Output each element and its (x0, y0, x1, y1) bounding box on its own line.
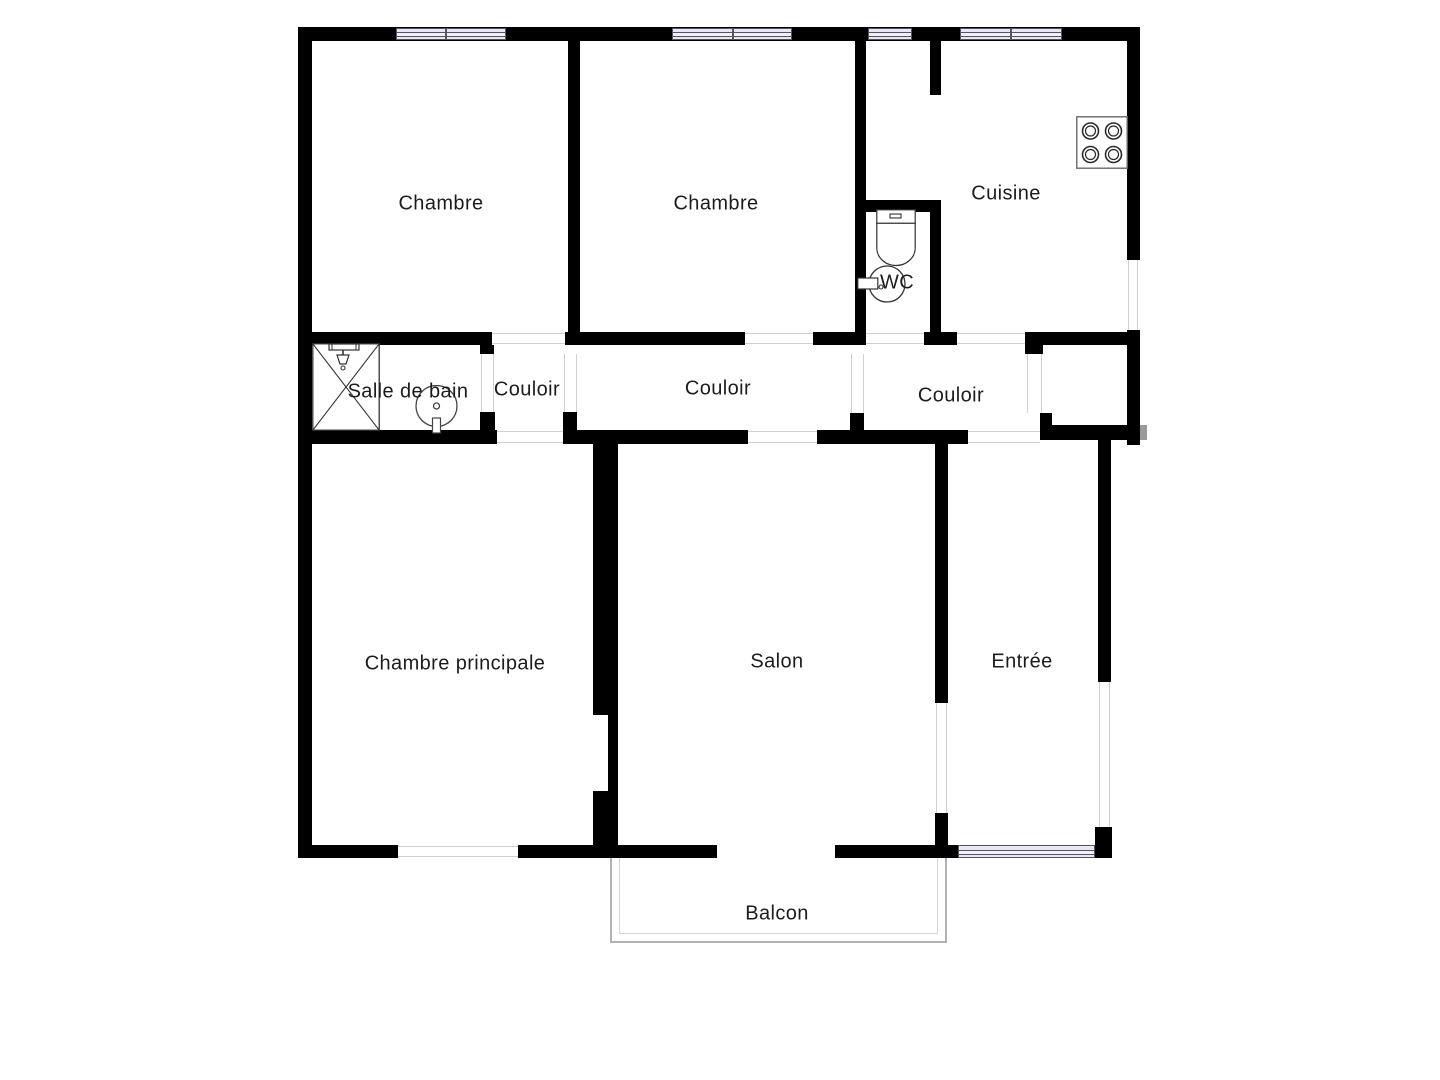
wall-segment (563, 430, 748, 444)
room-label-chambre-2: Chambre (673, 193, 758, 216)
door-opening-line (968, 431, 1040, 432)
door-opening-line (492, 333, 565, 334)
door-opening-line (1041, 354, 1042, 413)
window (396, 28, 446, 40)
room-label-couloir-1: Couloir (494, 379, 560, 402)
door-opening-line (851, 354, 852, 413)
wall-segment (930, 41, 941, 95)
room-label-couloir-3: Couloir (918, 385, 984, 408)
wall-segment (1095, 827, 1112, 858)
door-opening-line (492, 343, 565, 344)
wall-opening-line (936, 703, 937, 813)
wall-segment (1025, 345, 1043, 354)
window (960, 28, 1011, 40)
room-label-cuisine: Cuisine (971, 183, 1041, 206)
wall-segment (565, 332, 745, 345)
wall-segment (1040, 425, 1140, 440)
door-opening-line (957, 343, 1025, 344)
wall-segment (298, 845, 398, 858)
room-label-chambre-1: Chambre (398, 193, 483, 216)
door-opening-line (745, 343, 813, 344)
door-opening-line (497, 442, 563, 443)
door-opening-line (1027, 354, 1028, 413)
wall-segment (1040, 413, 1052, 425)
wall-segment (817, 430, 968, 444)
wall-segment (312, 430, 497, 444)
door-opening-line (564, 354, 565, 412)
wall-segment (813, 332, 866, 345)
wall-segment (480, 345, 494, 354)
wall-segment (608, 715, 618, 791)
wall-opening-line (398, 846, 518, 847)
door-opening-line (866, 343, 924, 344)
wall-opening-line (946, 703, 947, 813)
wall-segment (1127, 27, 1140, 260)
toilet-icon (876, 209, 916, 267)
wall-segment (935, 813, 948, 858)
door-opening-line (481, 354, 482, 412)
door-opening-line (576, 354, 577, 412)
wall-segment (935, 444, 948, 703)
window (446, 28, 506, 40)
window (958, 845, 1095, 858)
door-opening-line (748, 442, 817, 443)
door-opening-line (745, 333, 813, 334)
door-opening-line (866, 333, 924, 334)
window (672, 28, 733, 40)
room-label-entree: Entrée (991, 651, 1052, 674)
room-label-salon: Salon (750, 651, 803, 674)
door-opening-line (497, 431, 563, 432)
wall-segment (1025, 332, 1140, 345)
room-label-salle-de-bain: Salle de bain (348, 381, 469, 404)
door-opening-line (748, 431, 817, 432)
wall-segment (924, 332, 957, 345)
floor-plan: Chambre Chambre Cuisine WC Salle de bain… (0, 0, 1440, 1080)
room-label-wc: WC (880, 272, 914, 295)
wall-segment (480, 412, 495, 430)
wall-segment (1140, 425, 1147, 440)
wall-segment (850, 413, 864, 430)
wall-opening-line (1099, 682, 1100, 827)
door-opening-line (957, 333, 1025, 334)
stove-icon (1076, 116, 1128, 169)
wall-opening-line (1128, 260, 1129, 330)
room-label-couloir-2: Couloir (685, 378, 751, 401)
wall-segment (593, 791, 618, 858)
wall-opening-line (1109, 682, 1110, 827)
room-label-chambre-principale: Chambre principale (365, 653, 546, 676)
door-opening-line (863, 354, 864, 413)
window (868, 28, 912, 40)
wall-segment (930, 212, 941, 345)
wall-opening-line (1137, 260, 1138, 330)
window (733, 28, 792, 40)
door-opening-line (968, 442, 1040, 443)
wall-segment (1098, 440, 1111, 682)
wall-segment (298, 27, 312, 858)
window (1011, 28, 1062, 40)
wall-segment (593, 444, 618, 715)
wall-segment (563, 412, 577, 430)
wall-segment (568, 41, 580, 332)
wall-opening-line (398, 856, 518, 857)
room-label-balcon: Balcon (745, 903, 809, 926)
